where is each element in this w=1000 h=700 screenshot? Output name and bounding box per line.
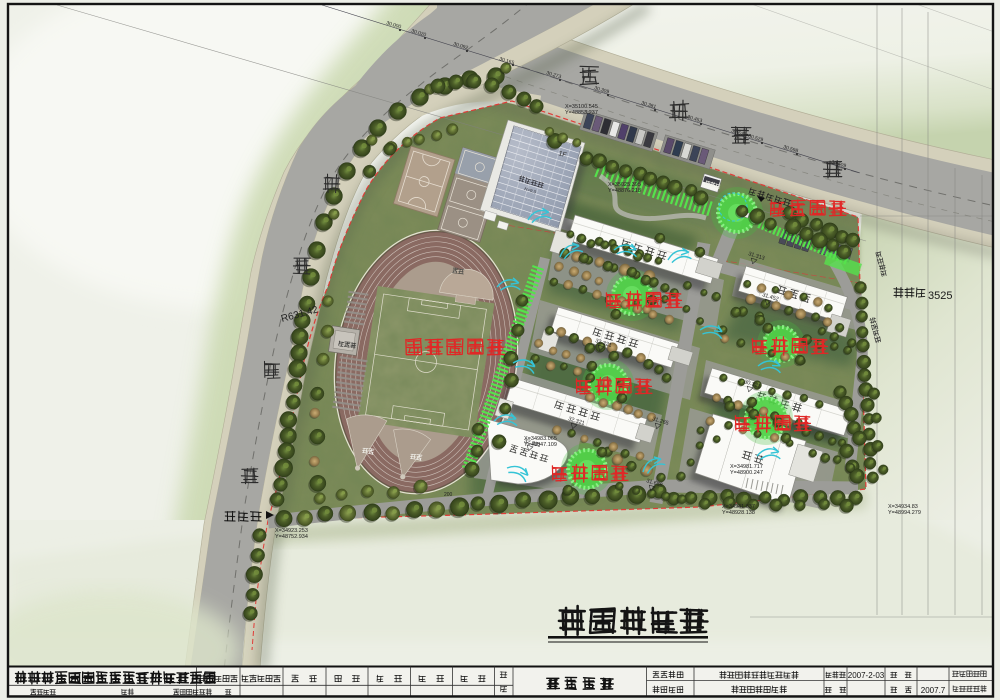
svg-text:Y=48928.138: Y=48928.138 — [722, 510, 755, 516]
svg-text:Y=48752.934: Y=48752.934 — [275, 534, 308, 540]
svg-text:3525: 3525 — [928, 290, 952, 302]
svg-text:Y=48900.247: Y=48900.247 — [730, 470, 763, 476]
svg-text:2007-2-03: 2007-2-03 — [848, 671, 885, 680]
svg-text:Y=48853.237: Y=48853.237 — [565, 110, 598, 116]
svg-text:2007.7: 2007.7 — [921, 686, 946, 695]
svg-text:Y=48876.218: Y=48876.218 — [608, 188, 641, 194]
svg-text:Y=48994.279: Y=48994.279 — [888, 510, 921, 516]
